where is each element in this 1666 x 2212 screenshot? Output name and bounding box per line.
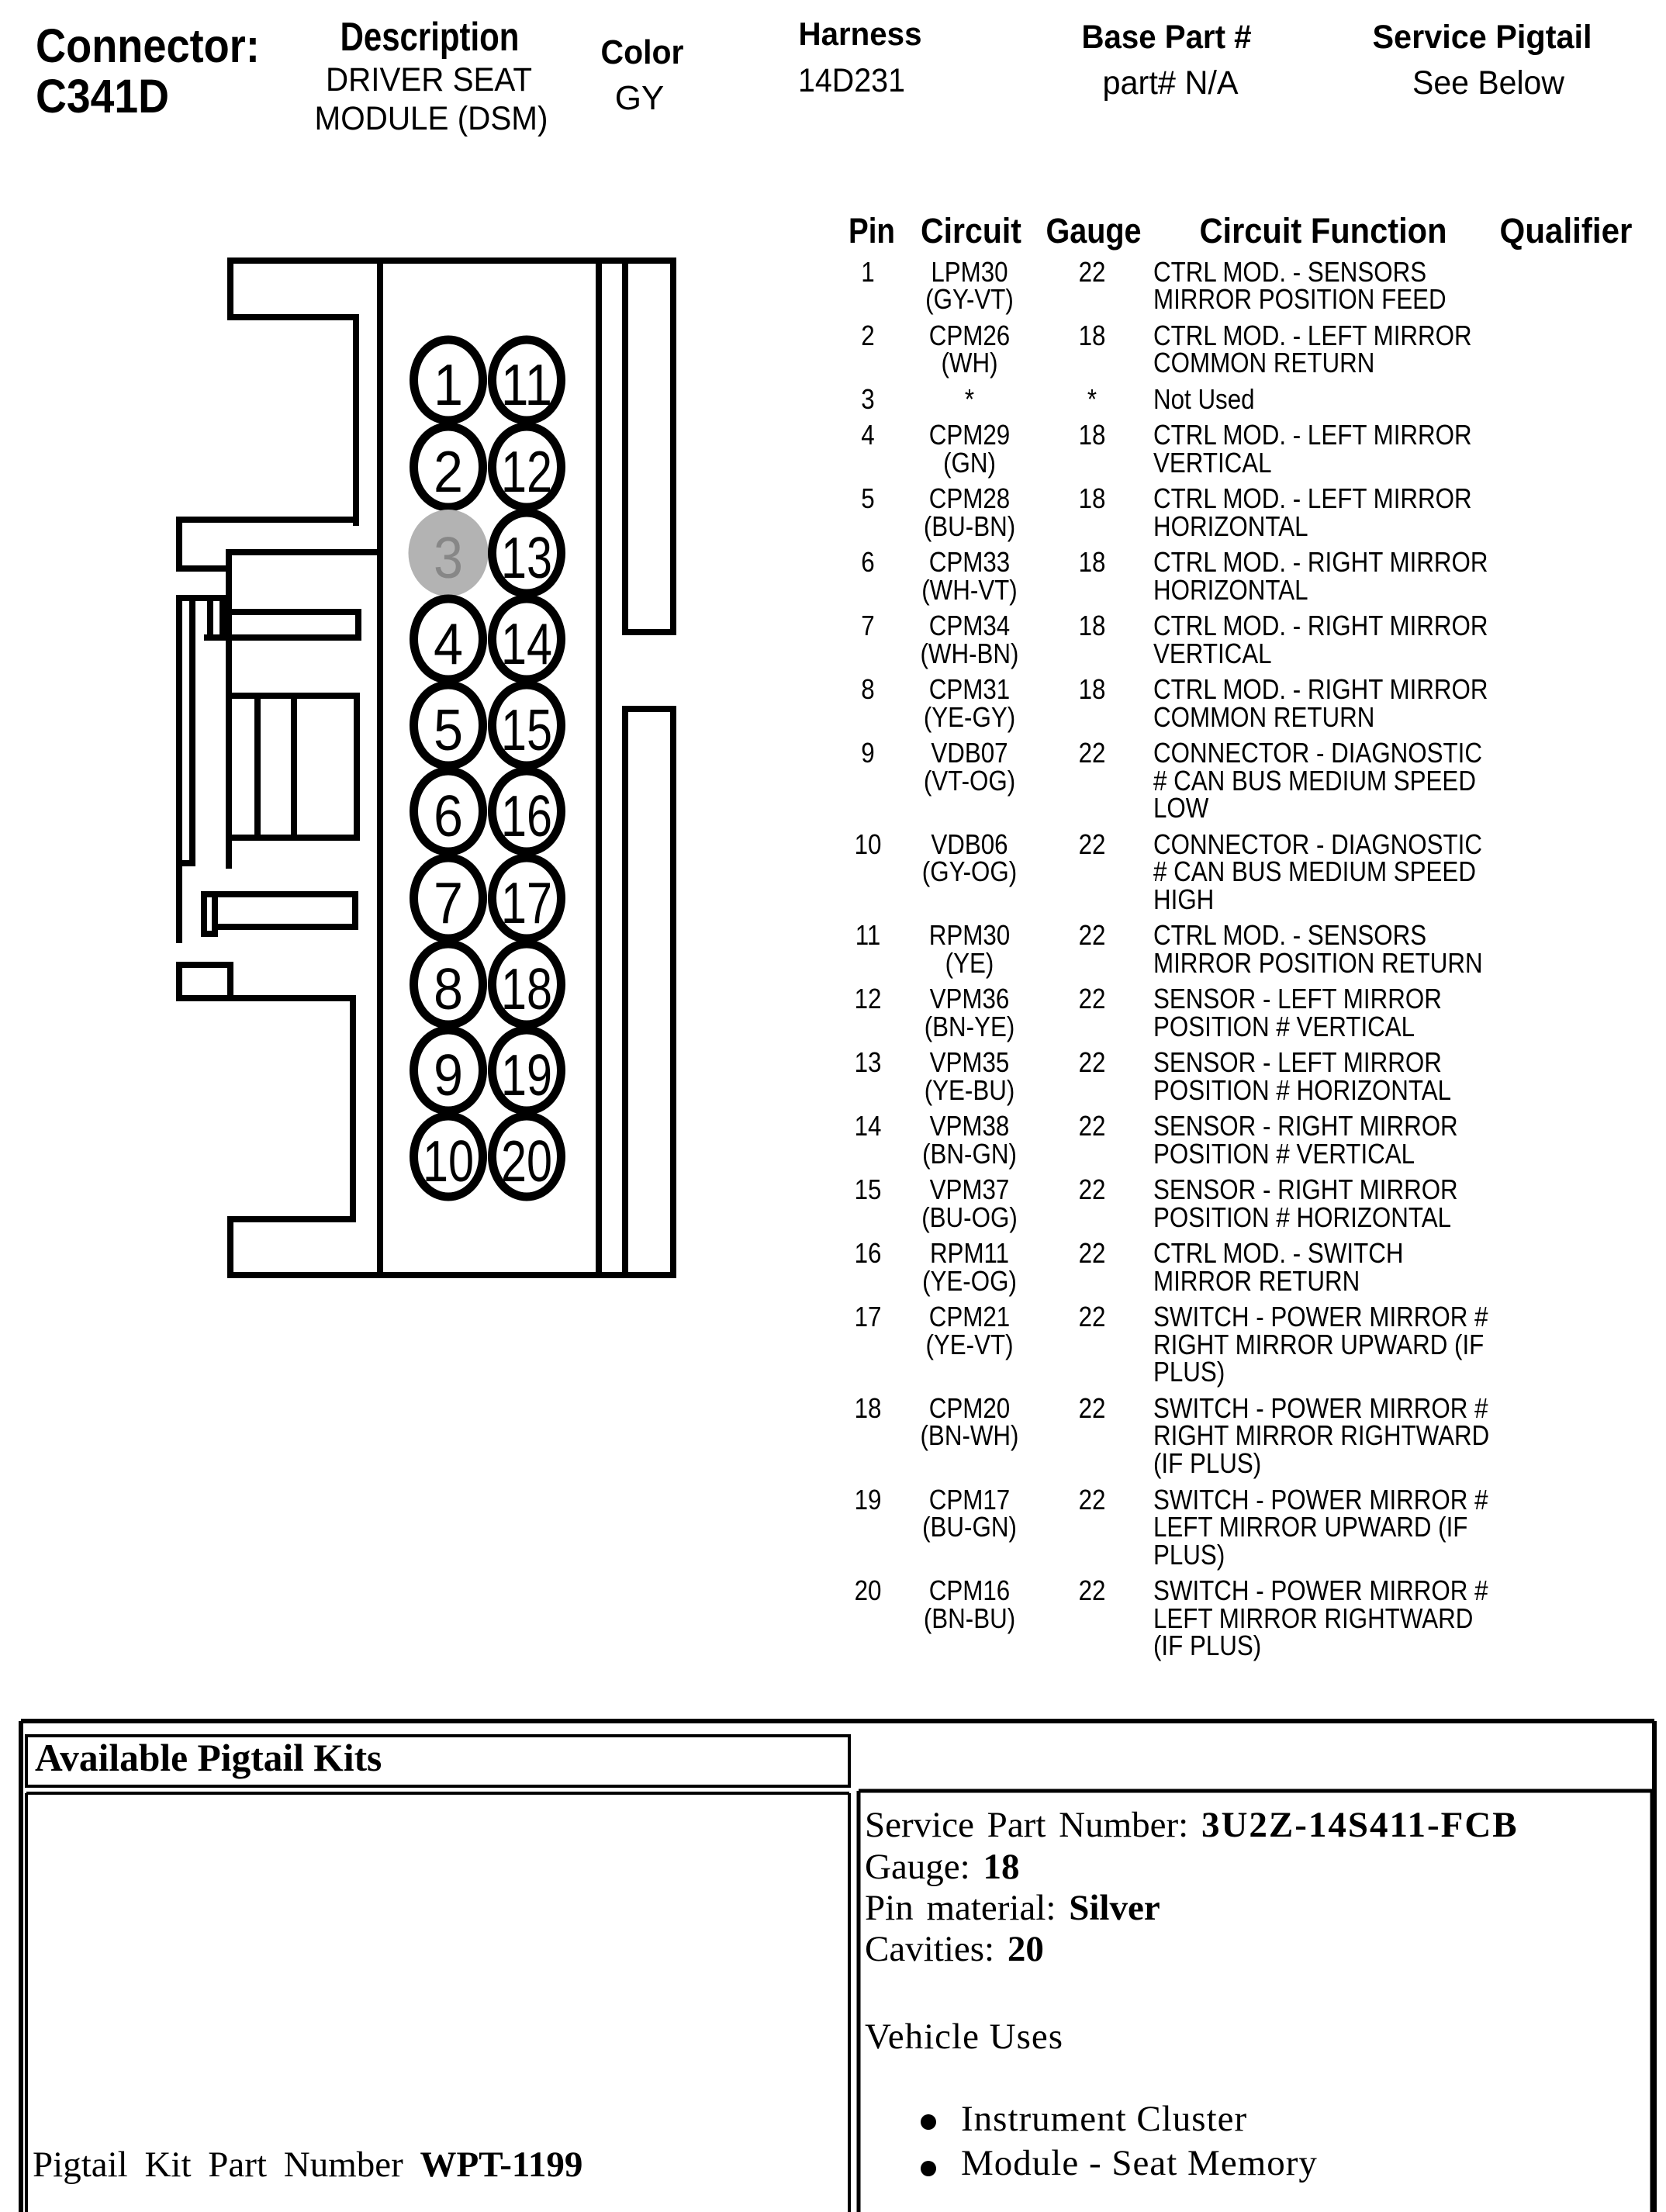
svg-text:6: 6 — [434, 783, 463, 849]
svg-text:5: 5 — [434, 697, 463, 762]
svg-text:4: 4 — [434, 611, 463, 676]
svg-text:20: 20 — [501, 1128, 552, 1194]
svg-text:7: 7 — [434, 870, 463, 935]
svg-text:16: 16 — [501, 783, 552, 849]
svg-text:14: 14 — [501, 611, 552, 676]
svg-text:18: 18 — [501, 956, 552, 1021]
svg-text:10: 10 — [423, 1128, 474, 1194]
svg-text:1: 1 — [434, 352, 463, 417]
svg-text:15: 15 — [501, 697, 552, 762]
svg-text:13: 13 — [501, 525, 552, 590]
svg-text:11: 11 — [501, 352, 552, 417]
svg-text:8: 8 — [434, 956, 463, 1021]
svg-text:3: 3 — [434, 525, 463, 590]
svg-text:12: 12 — [501, 439, 552, 504]
svg-text:17: 17 — [501, 870, 552, 935]
svg-text:2: 2 — [434, 439, 463, 504]
svg-text:9: 9 — [434, 1042, 463, 1108]
svg-text:19: 19 — [501, 1042, 552, 1108]
